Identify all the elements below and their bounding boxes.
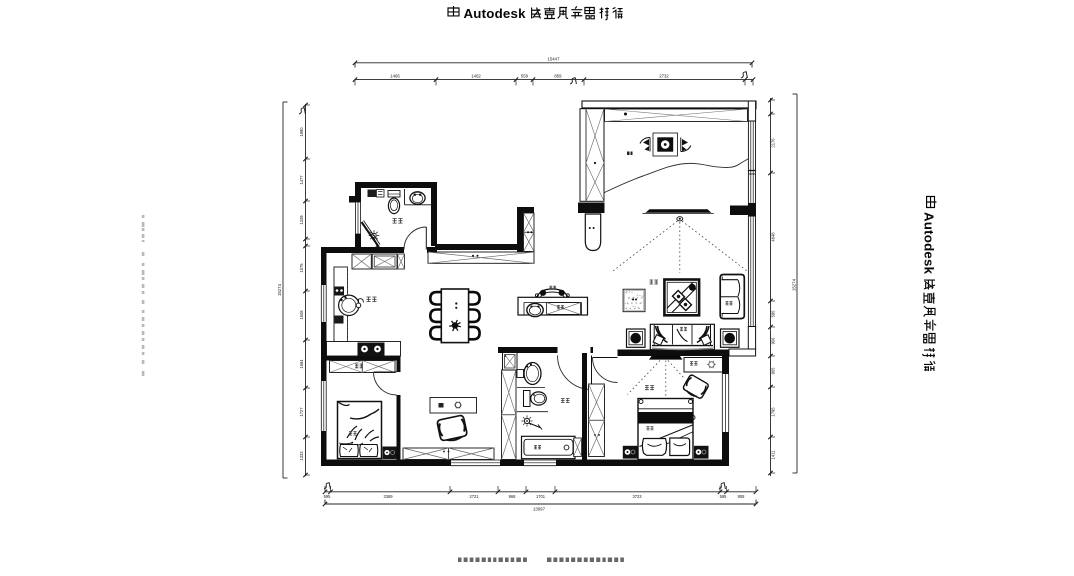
svg-text:559: 559 [521,74,529,79]
svg-text:1575: 1575 [299,263,304,273]
svg-text:3723: 3723 [632,494,642,499]
svg-text:1684: 1684 [299,359,304,369]
svg-text:1727: 1727 [299,407,304,417]
svg-text:Autodesk: Autodesk [922,212,937,275]
svg-text:15447: 15447 [548,57,561,62]
svg-text:968: 968 [509,494,517,499]
svg-text:15274: 15274 [792,278,797,291]
svg-text:595: 595 [324,494,332,499]
svg-text:1477: 1477 [299,175,304,185]
svg-text:1466: 1466 [390,74,400,79]
svg-text:13097: 13097 [533,507,546,512]
svg-text:1890: 1890 [299,127,304,137]
svg-text:1402: 1402 [471,74,481,79]
svg-text:2176: 2176 [771,138,776,148]
svg-text:905: 905 [771,367,776,375]
svg-text:595: 595 [720,494,728,499]
svg-text:3369: 3369 [383,494,393,499]
svg-text:15274: 15274 [277,283,282,296]
svg-text:859: 859 [554,74,562,79]
svg-text:4648: 4648 [771,232,776,242]
svg-text:1411: 1411 [771,450,776,460]
svg-text:2732: 2732 [659,74,669,79]
svg-text:908: 908 [738,494,746,499]
svg-text:595: 595 [771,310,776,318]
svg-text:2721: 2721 [469,494,479,499]
svg-text:1608: 1608 [299,310,304,320]
svg-text:906: 906 [771,337,776,345]
svg-text:Autodesk: Autodesk [464,6,527,21]
svg-text:1701: 1701 [536,494,546,499]
svg-text:1339: 1339 [299,215,304,225]
svg-text:1795: 1795 [771,407,776,417]
svg-text:1333: 1333 [299,451,304,461]
